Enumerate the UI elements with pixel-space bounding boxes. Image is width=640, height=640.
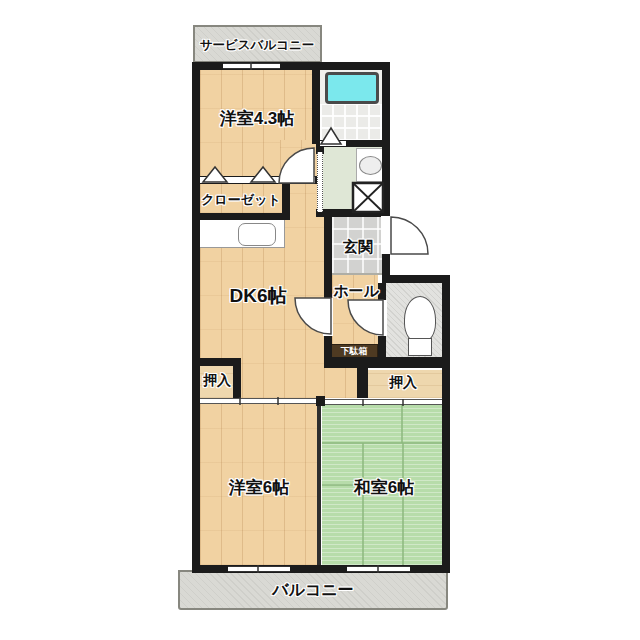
wall-oshiire-right-left bbox=[357, 366, 368, 398]
label-entrance: 玄関 bbox=[343, 238, 373, 257]
closet-door-opening bbox=[200, 177, 280, 183]
tatami-entry-strip-floor bbox=[324, 366, 357, 398]
washbasin-icon bbox=[359, 156, 382, 175]
wall-divider-stub bbox=[316, 396, 325, 406]
label-oshiire-left: 押入 bbox=[203, 372, 231, 390]
toilet-icon bbox=[404, 296, 436, 343]
wall-top bbox=[192, 62, 390, 70]
wall-closet-bottom bbox=[192, 213, 290, 220]
bathtub-icon bbox=[325, 72, 379, 104]
sliding-partition-dk bbox=[200, 398, 317, 404]
wall-toilet-top bbox=[384, 275, 450, 283]
room-divider bbox=[317, 398, 321, 565]
bathroom-tile bbox=[320, 104, 382, 141]
label-western-room-43: 洋室4.3帖 bbox=[220, 107, 295, 130]
toilet-tank bbox=[408, 338, 432, 356]
window-service-balcony bbox=[223, 63, 280, 69]
label-service-balcony: サービスバルコニー bbox=[200, 37, 315, 54]
toilet-door-opening bbox=[377, 300, 387, 336]
kitchen-counter bbox=[197, 218, 285, 248]
entrance-step-line bbox=[332, 273, 384, 275]
label-hall: ホール bbox=[333, 282, 379, 301]
sliding-partition-washitsu bbox=[322, 399, 442, 405]
wall-hall-bottom bbox=[324, 357, 450, 368]
wall-left bbox=[192, 62, 200, 573]
wall-dk-hall bbox=[324, 213, 332, 366]
kitchen-sink-icon bbox=[238, 223, 276, 246]
label-shoe-cabinet: 下駄箱 bbox=[341, 345, 368, 358]
floor-plan: サービスバルコニー 洋室4.3帖 クローゼット DK6帖 玄関 ホール 下駄箱 … bbox=[0, 0, 640, 640]
label-japanese-room-6: 和室6帖 bbox=[354, 476, 414, 499]
wall-bath-left bbox=[312, 62, 320, 144]
window-japanese6 bbox=[347, 566, 410, 572]
window-western6 bbox=[228, 566, 290, 572]
washroom-accordion-door bbox=[317, 152, 323, 212]
label-closet: クローゼット bbox=[201, 191, 281, 209]
bath-door-opening bbox=[320, 141, 346, 146]
room43-door-opening bbox=[285, 177, 315, 183]
dk-door-opening bbox=[323, 298, 333, 336]
label-dk: DK6帖 bbox=[229, 283, 286, 309]
wall-oshiire-left-right bbox=[233, 358, 241, 398]
label-oshiire-right: 押入 bbox=[389, 374, 417, 392]
wall-right-lower bbox=[442, 275, 450, 573]
front-door-opening bbox=[381, 216, 391, 254]
label-balcony: バルコニー bbox=[272, 580, 354, 601]
label-western-room-6: 洋室6帖 bbox=[229, 476, 289, 499]
